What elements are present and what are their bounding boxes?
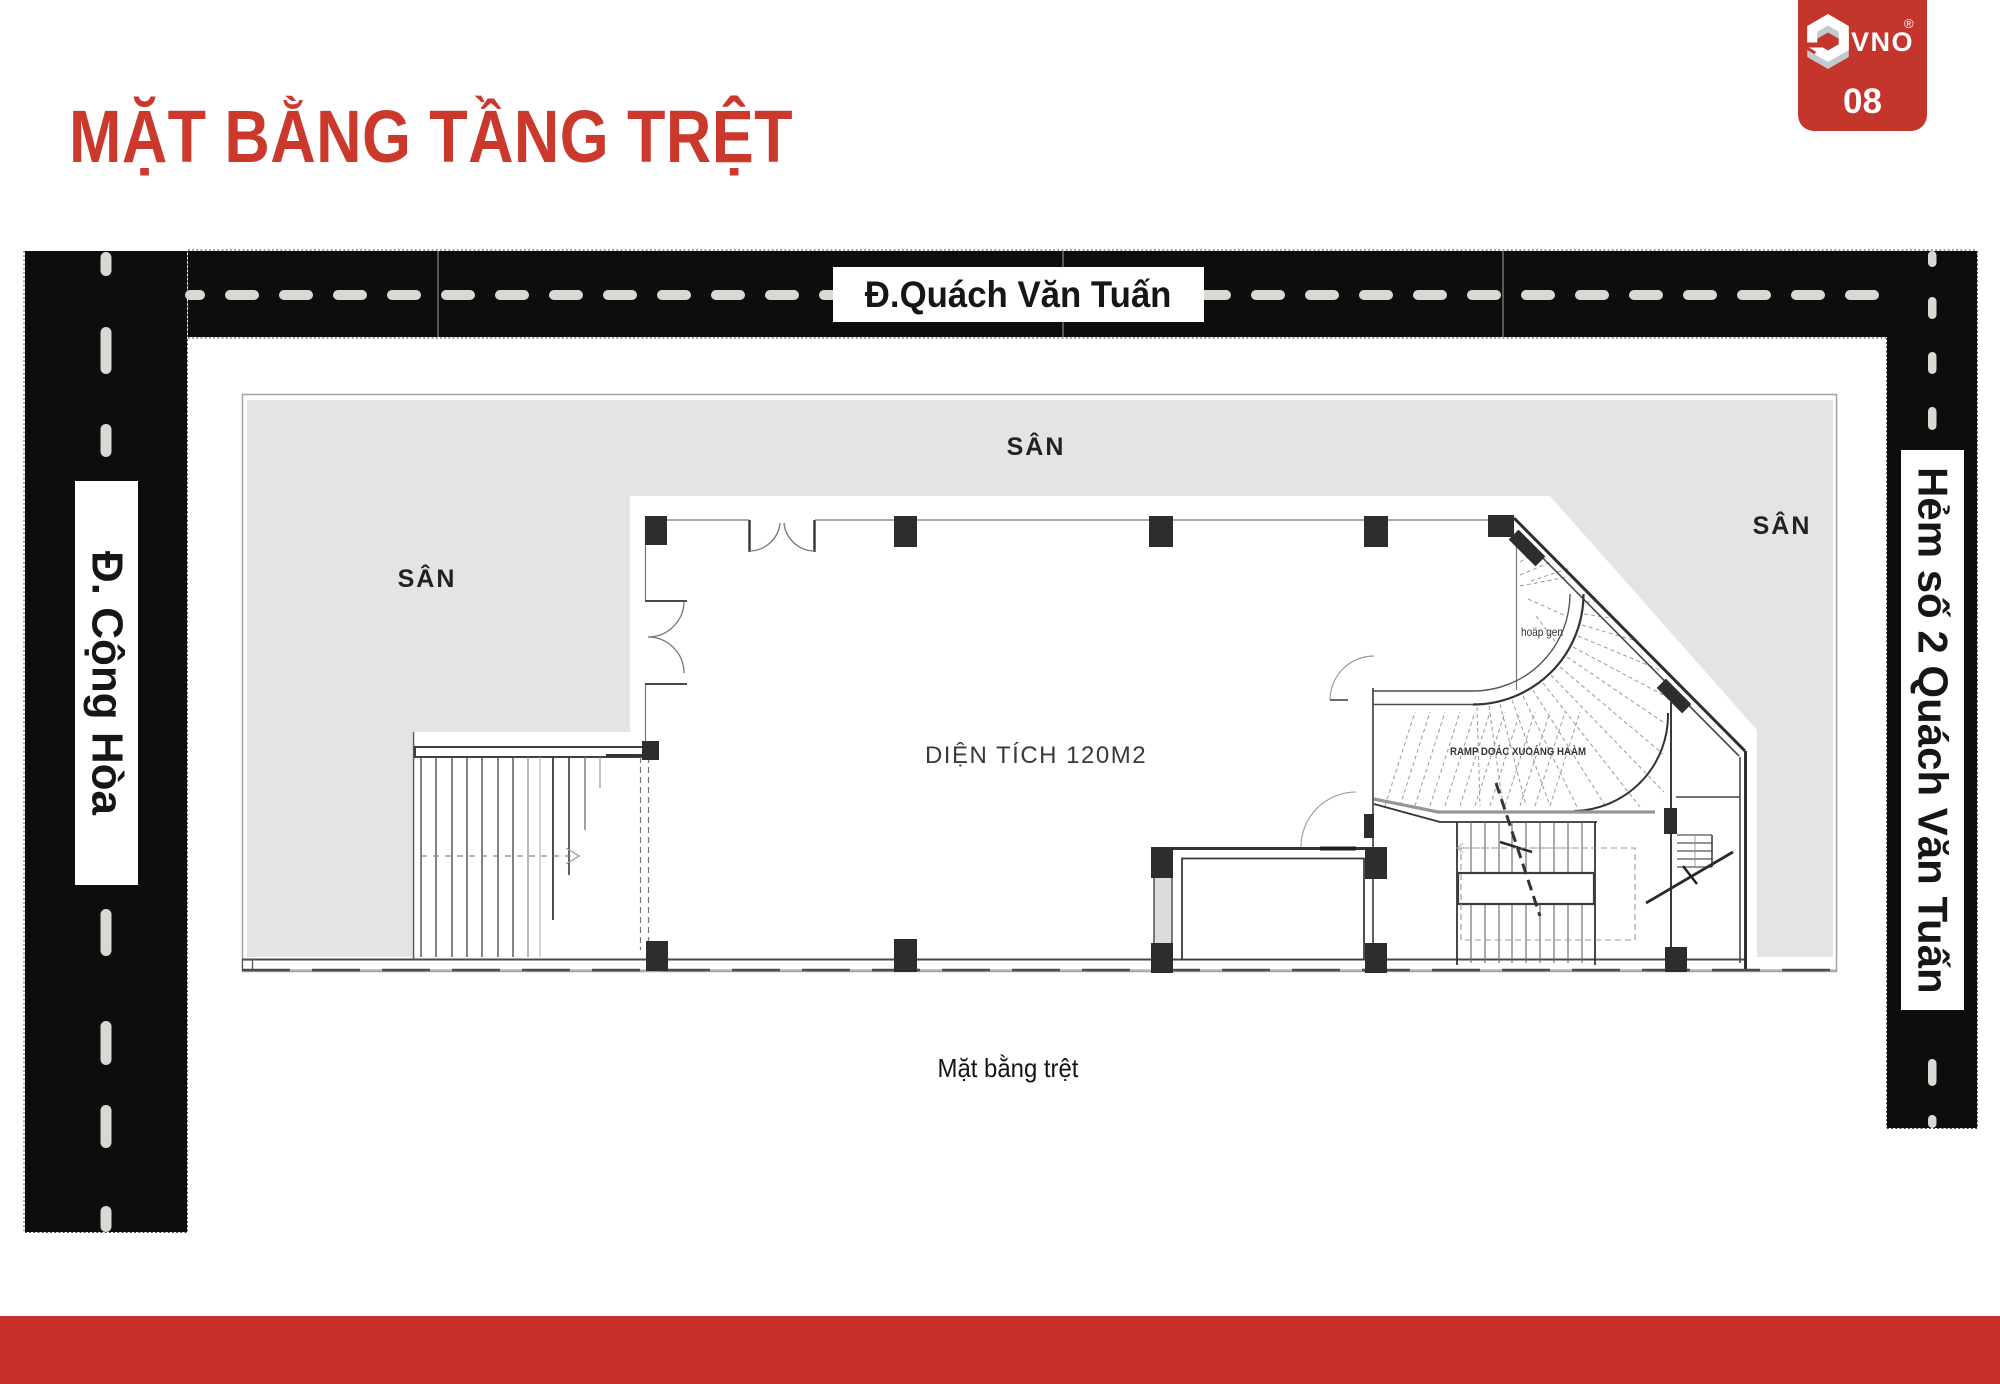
svg-text:RAMP DOÁC XUOÁNG HAÀM: RAMP DOÁC XUOÁNG HAÀM (1450, 745, 1586, 758)
svg-text:SÂN: SÂN (1753, 510, 1812, 540)
svg-text:SÂN: SÂN (398, 563, 457, 593)
svg-text:DIỆN TÍCH 120M2: DIỆN TÍCH 120M2 (925, 742, 1147, 769)
svg-text:hoäp gen: hoäp gen (1521, 625, 1563, 639)
svg-text:SÂN: SÂN (1007, 431, 1066, 461)
